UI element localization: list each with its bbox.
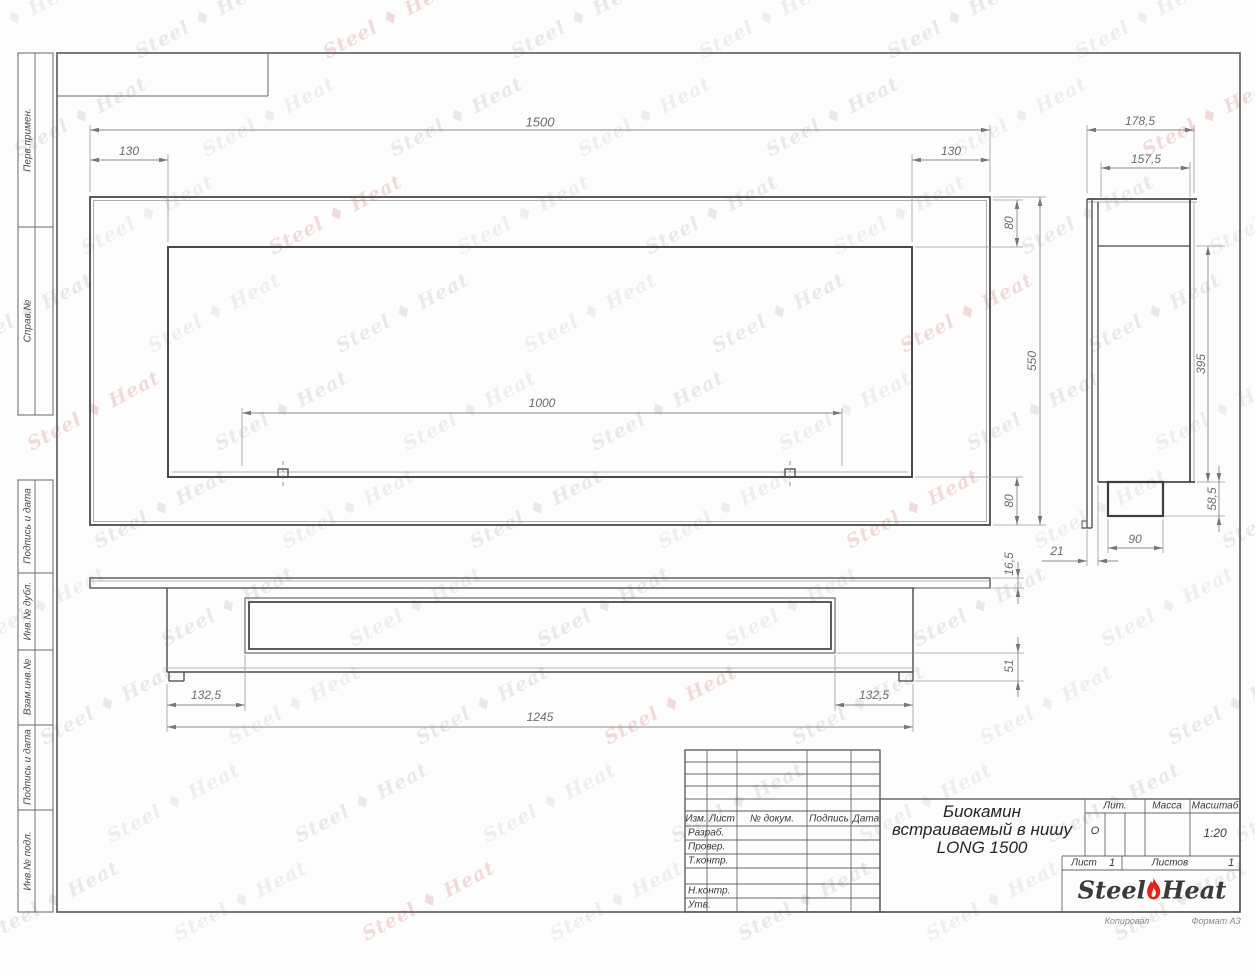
- tb-scale-value: 1:20: [1203, 826, 1226, 840]
- brand-logo: Steel Heat: [1078, 876, 1227, 905]
- tb-lit-header: Лит.: [1103, 801, 1126, 812]
- dim-label-top-body-width: 1245: [527, 710, 554, 724]
- dim-label-top-flange-thickness: 16,5: [1002, 552, 1016, 575]
- tb-row-nkontr: Н.контр.: [688, 886, 730, 897]
- tb-header-data: Дата: [853, 814, 879, 825]
- sidebar-label-podpis-data-2: Подпись и дата: [23, 729, 34, 805]
- tb-row-prover: Провер.: [688, 842, 725, 853]
- dim-label-top-body-depth: 51: [1002, 659, 1016, 672]
- doc-title-line-2: встраиваемый в нишу: [892, 820, 1072, 840]
- tb-sheet-label: Лист: [1071, 858, 1097, 869]
- tb-sheets-label: Листов: [1152, 858, 1188, 869]
- footer-kopiroval: Копировал: [1105, 916, 1150, 926]
- sidebar-label-podpis-data-1: Подпись и дата: [23, 488, 34, 564]
- sidebar-label-vzam-inv: Взам.инв.№: [23, 659, 34, 715]
- sidebar-label-perv-primen: Перв.примен.: [23, 108, 34, 172]
- dim-label-front-top-inset: 80: [1002, 216, 1016, 229]
- tb-row-utv: Утв.: [688, 900, 711, 911]
- dim-label-side-depth-total: 178,5: [1125, 114, 1155, 128]
- sidebar-label-sprav-no: Справ.№: [23, 300, 34, 343]
- sidebar-label-inv-dubl: Инв.№ дубл.: [23, 582, 34, 641]
- dim-label-top-left-inset: 132,5: [191, 688, 221, 702]
- brand-logo-heat: Heat: [1162, 876, 1227, 905]
- dim-label-side-height-inner: 395: [1194, 354, 1208, 374]
- tb-sheets-value: 1: [1228, 857, 1234, 869]
- dim-label-front-mount-span: 1000: [529, 396, 556, 410]
- tb-row-razrab: Разраб.: [688, 828, 724, 839]
- doc-title-line-1: Биокамин: [943, 802, 1021, 822]
- footer-format: Формат А3: [1191, 916, 1240, 926]
- tb-row-tkontr: Т.контр.: [688, 856, 728, 867]
- dim-label-top-right-inset: 132,5: [859, 688, 889, 702]
- dim-label-side-plate-gap: 21: [1050, 544, 1063, 558]
- dim-label-front-left-inset: 130: [119, 144, 139, 158]
- tb-header-ndokum: № докум.: [750, 814, 794, 825]
- dim-label-side-depth-body: 157,5: [1131, 152, 1161, 166]
- dim-label-front-total-width: 1500: [526, 115, 555, 130]
- tb-header-podpis: Подпись: [809, 814, 849, 825]
- drawing-sheet: Steel ♦ HeatSteel ♦ HeatSteel ♦ HeatStee…: [0, 0, 1255, 970]
- tb-header-list: Лист: [709, 814, 735, 825]
- dim-label-front-bottom-inset: 80: [1002, 494, 1016, 507]
- dim-label-side-burner-height: 58,5: [1205, 487, 1219, 510]
- tb-scale-header: Масштаб: [1192, 801, 1239, 812]
- tb-mass-header: Масса: [1152, 801, 1182, 812]
- dim-label-side-burner-width: 90: [1128, 532, 1141, 546]
- sidebar-label-inv-podl: Инв.№ подл.: [23, 831, 34, 890]
- tb-sheet-value: 1: [1109, 857, 1115, 869]
- dim-label-front-height: 550: [1025, 351, 1039, 371]
- tb-header-izm: Изм.: [685, 814, 706, 825]
- tb-lit-value: О: [1091, 825, 1100, 837]
- brand-logo-steel: Steel: [1078, 876, 1146, 905]
- dim-label-front-right-inset: 130: [941, 144, 961, 158]
- doc-title-line-3: LONG 1500: [937, 838, 1028, 858]
